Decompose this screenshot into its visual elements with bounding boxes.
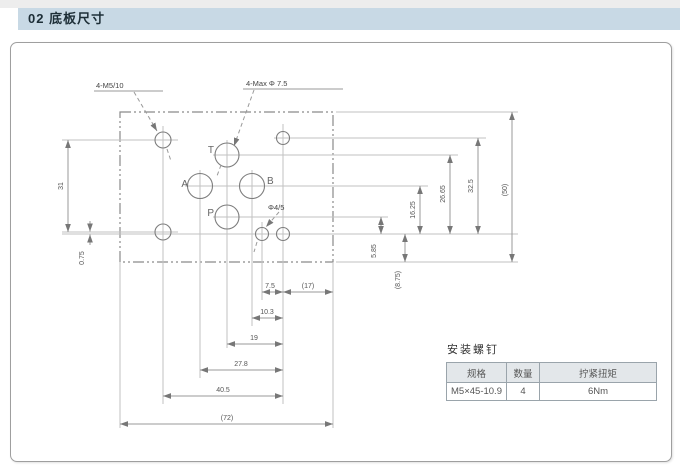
dim-17: (17) <box>302 283 314 290</box>
dim-72: (72) <box>221 415 233 422</box>
mounting-screw-table-block: 安装螺钉 规格 数量 拧紧扭矩 M5×45-10.9 4 6Nm <box>446 341 657 401</box>
col-header-qty: 数量 <box>507 363 540 383</box>
dim-7-5: 7.5 <box>265 283 275 290</box>
port-label-t: T <box>208 145 214 156</box>
table-row: M5×45-10.9 4 6Nm <box>447 383 657 401</box>
dim-5-85: 5.85 <box>371 244 378 258</box>
col-header-torque: 拧紧扭矩 <box>540 363 657 383</box>
cell-spec: M5×45-10.9 <box>447 383 507 401</box>
col-header-spec: 规格 <box>447 363 507 383</box>
max-port-dia-callout: 4-Max Φ 7.5 <box>246 79 287 88</box>
dim-19: 19 <box>250 335 258 342</box>
dim-26-65: 26.65 <box>440 185 447 203</box>
port-labels: T A B P <box>181 145 274 219</box>
port-label-p: P <box>207 208 214 219</box>
port-label-a: A <box>181 179 188 190</box>
dim-10-3: 10.3 <box>260 309 274 316</box>
dim-40-5: 40.5 <box>216 387 230 394</box>
dim-27-8: 27.8 <box>234 361 248 368</box>
cell-torque: 6Nm <box>540 383 657 401</box>
dim-16-25: 16.25 <box>410 201 417 219</box>
dimension-lines: 7.5 (17) 10.3 19 27.8 40.5 (72) 31 0.75 … <box>58 112 512 424</box>
cell-qty: 4 <box>507 383 540 401</box>
dim-0-75: 0.75 <box>79 251 86 265</box>
port-label-b: B <box>267 176 274 187</box>
dim-8-75: (8.75) <box>395 271 402 289</box>
mounting-screw-table-title: 安装螺钉 <box>447 341 657 357</box>
dim-32-5: 32.5 <box>468 179 475 193</box>
pin-hole-callout: Φ4/5 <box>268 203 284 212</box>
mounting-screw-table: 规格 数量 拧紧扭矩 M5×45-10.9 4 6Nm <box>446 362 657 401</box>
dim-31: 31 <box>58 182 65 190</box>
dim-50: (50) <box>502 184 509 196</box>
mounting-thread-callout: 4-M5/10 <box>96 81 124 90</box>
